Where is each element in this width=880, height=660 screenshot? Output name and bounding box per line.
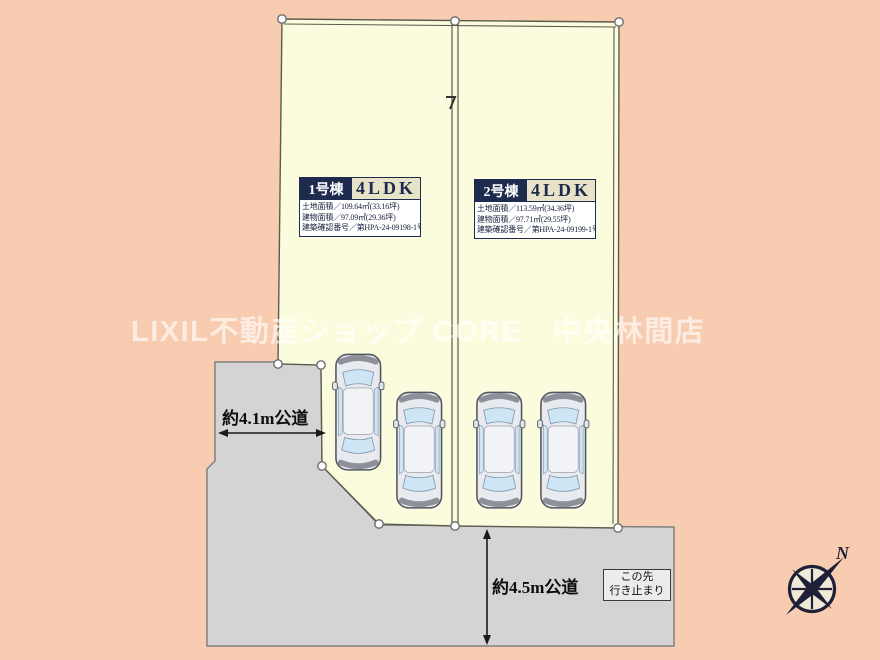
- boundary-marker: [451, 522, 459, 530]
- lot-2-building-area: 建物面積／97.71㎡(29.55坪): [477, 215, 593, 226]
- compass-rose: N: [786, 543, 850, 615]
- site-plan-drawing: N: [0, 0, 880, 660]
- boundary-marker: [615, 18, 623, 26]
- lot-1-infobox: 1号棟 4LDK 土地面積／109.64㎡(33.16坪) 建物面積／97.09…: [299, 177, 421, 237]
- boundary-marker: [614, 524, 622, 532]
- lot-1-plan-label: 4LDK: [352, 178, 420, 199]
- dead-end-sign-line2: 行き止まり: [604, 585, 670, 599]
- lot-2-details: 土地面積／113.59㎡(34.36坪) 建物面積／97.71㎡(29.55坪)…: [474, 202, 596, 239]
- parked-car-1: [333, 354, 384, 469]
- lot-2-header: 2号棟 4LDK: [474, 179, 596, 202]
- boundary-marker: [318, 462, 326, 470]
- lot-2-infobox: 2号棟 4LDK 土地面積／113.59㎡(34.36坪) 建物面積／97.71…: [474, 179, 596, 239]
- parked-car-2: [394, 392, 445, 507]
- lot-1-building-area: 建物面積／97.09㎡(29.36坪): [302, 213, 418, 224]
- boundary-marker: [278, 15, 286, 23]
- boundary-marker: [451, 17, 459, 25]
- lot-2-name-badge: 2号棟: [475, 180, 527, 201]
- lot-1-details: 土地面積／109.64㎡(33.16坪) 建物面積／97.09㎡(29.36坪)…: [299, 200, 421, 237]
- boundary-marker: [317, 361, 325, 369]
- lot-2-plan-label: 4LDK: [527, 180, 595, 201]
- dead-end-sign: この先 行き止まり: [603, 569, 671, 601]
- lot-1-land-area: 土地面積／109.64㎡(33.16坪): [302, 202, 418, 213]
- lot-2-land-area: 土地面積／113.59㎡(34.36坪): [477, 204, 593, 215]
- site-plan: N 1号棟 4LDK 土地面積／109.64㎡(33.16坪) 建物面積／97.…: [0, 0, 880, 660]
- lot-2-confirmation-no: 建築確認番号／第HPA-24-09199-1号: [477, 225, 593, 236]
- west-road-label: 約4.1m公道: [222, 404, 308, 429]
- boundary-marker: [375, 520, 383, 528]
- south-road-label: 約4.5m公道: [492, 573, 578, 598]
- lot-1-name-badge: 1号棟: [300, 178, 352, 199]
- parked-car-3: [474, 392, 525, 507]
- compass-north-label: N: [835, 543, 850, 563]
- compass-hub: [808, 585, 816, 593]
- dead-end-sign-line1: この先: [604, 571, 670, 585]
- boundary-marker: [274, 360, 282, 368]
- lot-1-confirmation-no: 建築確認番号／第HPA-24-09198-1号: [302, 223, 418, 234]
- lot-1-header: 1号棟 4LDK: [299, 177, 421, 200]
- parked-car-4: [538, 392, 589, 507]
